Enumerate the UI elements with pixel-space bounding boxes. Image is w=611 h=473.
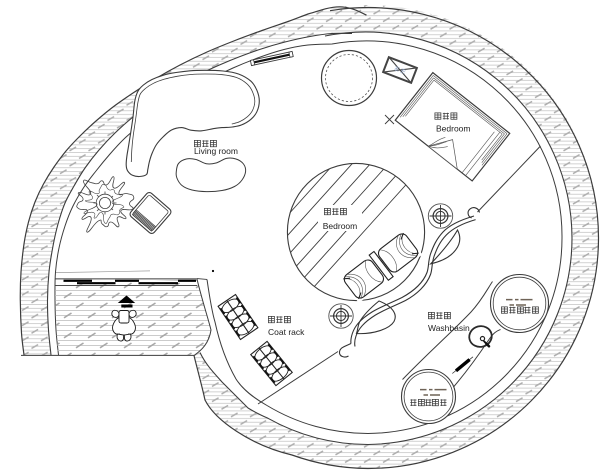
svg-text:Washbasin: Washbasin bbox=[428, 323, 470, 333]
svg-text:Bedroom: Bedroom bbox=[436, 124, 471, 134]
svg-text:Coat rack: Coat rack bbox=[268, 327, 305, 337]
svg-text:Living room: Living room bbox=[194, 146, 238, 156]
svg-text:Bedroom: Bedroom bbox=[323, 221, 358, 231]
